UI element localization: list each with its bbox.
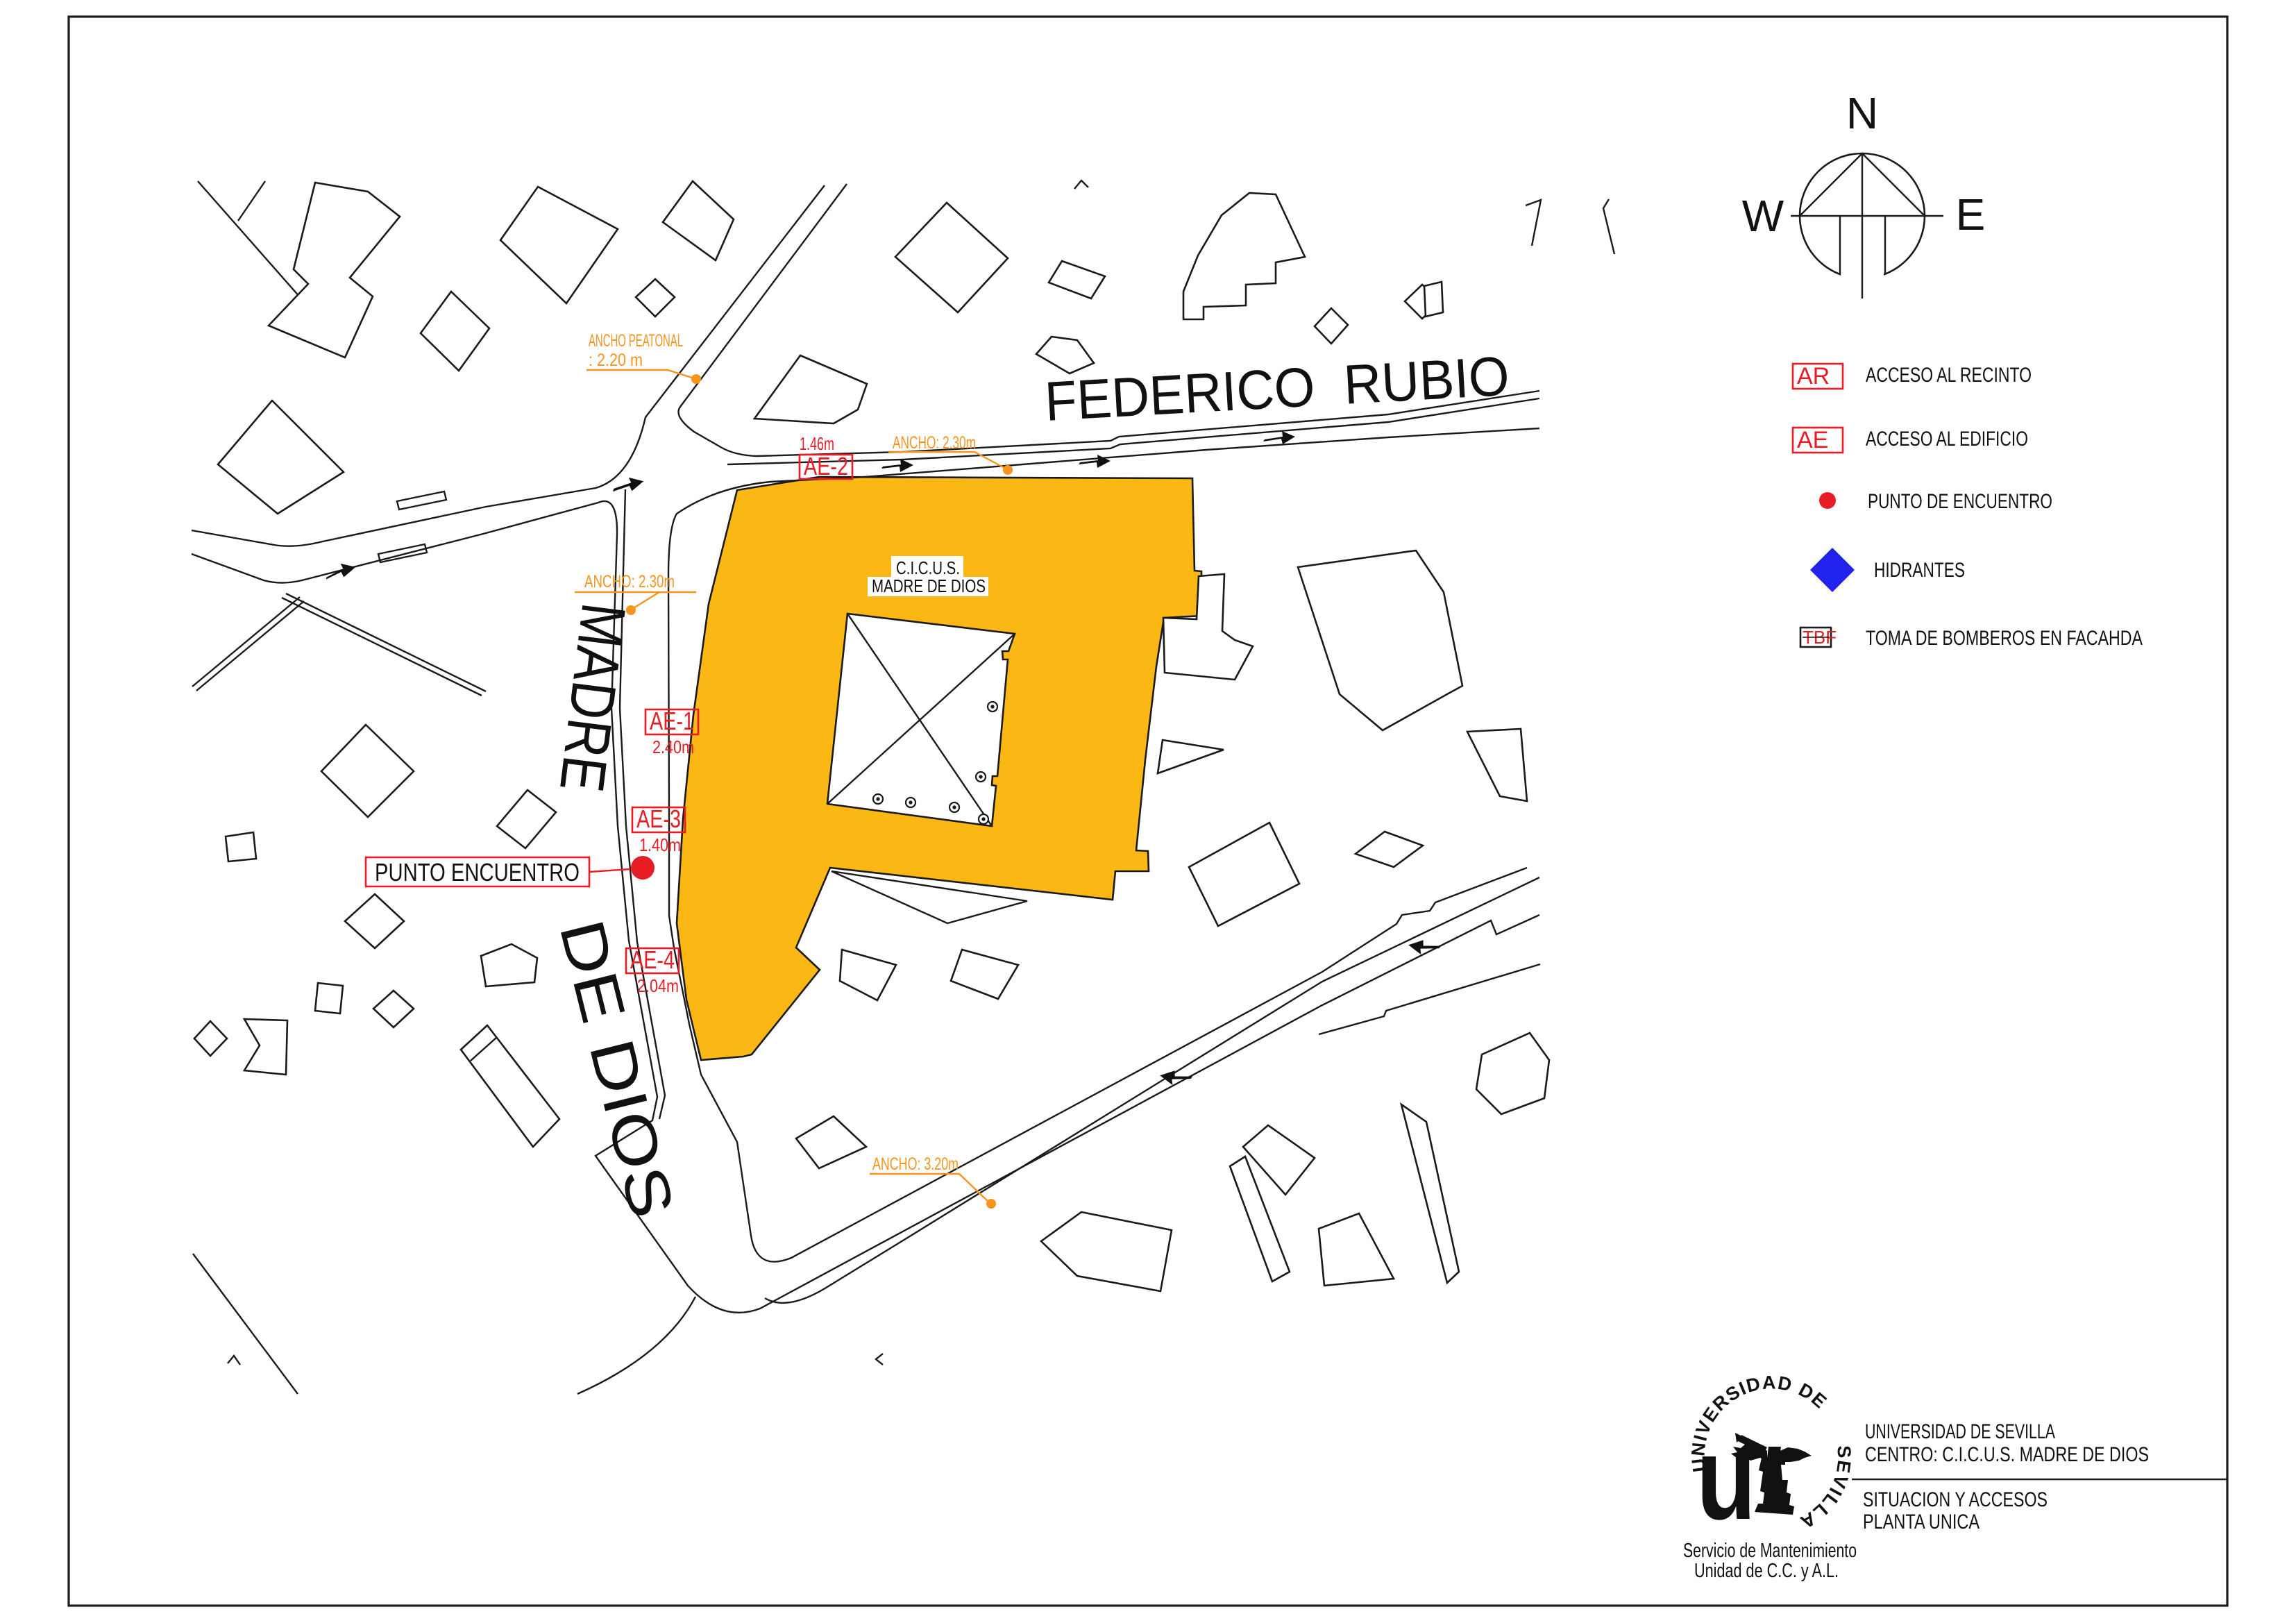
svg-text:1.46m: 1.46m: [800, 433, 834, 454]
svg-text:AR: AR: [1797, 363, 1830, 389]
svg-text:ANCHO PEATONAL: ANCHO PEATONAL: [589, 331, 683, 351]
svg-text:ANCHO: 2.30m: ANCHO: 2.30m: [893, 433, 976, 453]
svg-text:AE-1: AE-1: [650, 707, 694, 735]
svg-text:: 2.20 m: : 2.20 m: [589, 351, 643, 370]
svg-text:W: W: [1742, 191, 1784, 241]
svg-text:2.04m: 2.04m: [637, 975, 679, 996]
svg-text:CENTRO: C.I.C.U.S. MADRE DE DI: CENTRO: C.I.C.U.S. MADRE DE DIOS: [1865, 1443, 2149, 1466]
svg-text:Servicio de Mantenimiento: Servicio de Mantenimiento: [1683, 1540, 1857, 1562]
svg-text:PUNTO ENCUENTRO: PUNTO ENCUENTRO: [375, 858, 580, 886]
svg-text:u: u: [1696, 1413, 1756, 1545]
svg-text:PLANTA UNICA: PLANTA UNICA: [1863, 1511, 1980, 1533]
svg-text:AE-3: AE-3: [636, 805, 681, 833]
svg-text:AE: AE: [1797, 427, 1828, 453]
svg-text:ACCESO AL EDIFICIO: ACCESO AL EDIFICIO: [1866, 428, 2028, 451]
svg-text:PUNTO DE ENCUENTRO: PUNTO DE ENCUENTRO: [1868, 490, 2052, 513]
svg-text:N: N: [1846, 88, 1878, 138]
svg-text:AE-2: AE-2: [804, 452, 848, 480]
svg-text:ACCESO AL RECINTO: ACCESO AL RECINTO: [1866, 364, 2032, 387]
svg-text:AE-4: AE-4: [630, 945, 675, 974]
svg-text:SITUACION Y ACCESOS: SITUACION Y ACCESOS: [1863, 1488, 2048, 1511]
svg-text:ANCHO: 3.20m: ANCHO: 3.20m: [872, 1154, 959, 1174]
svg-text:HIDRANTES: HIDRANTES: [1874, 559, 1965, 582]
svg-text:Unidad de C.C. y A.L.: Unidad de C.C. y A.L.: [1694, 1560, 1839, 1582]
svg-text:2.40m: 2.40m: [652, 737, 694, 757]
svg-text:TOMA DE BOMBEROS EN FACAHDA: TOMA DE BOMBEROS EN FACAHDA: [1866, 627, 2143, 650]
svg-text:ANCHO: 2.30m: ANCHO: 2.30m: [584, 572, 675, 591]
svg-text:1.40m: 1.40m: [639, 834, 681, 855]
svg-text:UNIVERSIDAD DE SEVILLA: UNIVERSIDAD DE SEVILLA: [1865, 1420, 2055, 1443]
svg-text:E: E: [1956, 190, 1986, 239]
svg-text:MADRE DE DIOS: MADRE DE DIOS: [872, 575, 986, 596]
